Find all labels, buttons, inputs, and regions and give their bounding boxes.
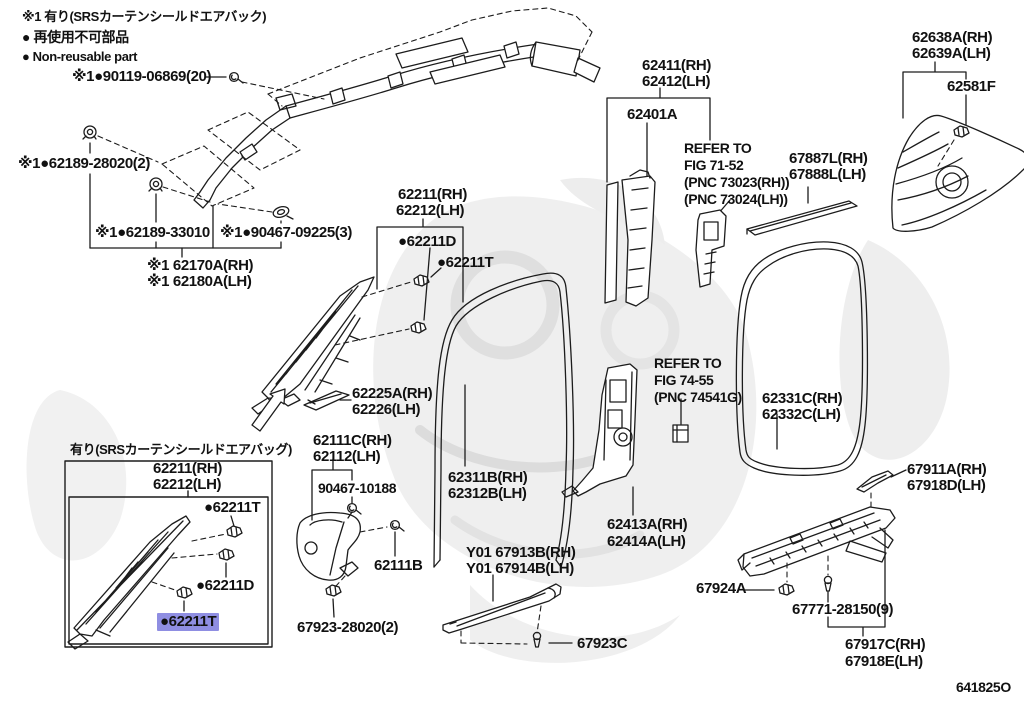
- refer-fig-74-55-line2: FIG 74-55: [654, 373, 713, 388]
- detail-box-label-62211[interactable]: 62211(RH): [153, 461, 222, 477]
- diagram-code: 641825O: [956, 680, 1011, 695]
- refer-fig-71-52-line1: REFER TO: [684, 141, 751, 156]
- part-label-62638a[interactable]: 62638A(RH): [912, 30, 992, 46]
- part-label-62401a[interactable]: 62401A: [627, 107, 677, 123]
- part-label-62332c[interactable]: 62332C(LH): [762, 407, 841, 423]
- part-label-62581f[interactable]: 62581F: [947, 79, 995, 95]
- part-label-62111c[interactable]: 62111C(RH): [313, 433, 392, 449]
- part-label-67887l[interactable]: 67887L(RH): [789, 151, 868, 167]
- detail-box-label-62212[interactable]: 62212(LH): [153, 477, 221, 493]
- part-label-62311b[interactable]: 62311B(RH): [448, 470, 527, 486]
- part-label-67913b[interactable]: Y01 67913B(RH): [466, 545, 575, 561]
- part-label-62211t[interactable]: ●62211T: [437, 255, 493, 271]
- legend-srs-note: ※1 有り(SRSカーテンシールドエアバック): [22, 10, 266, 24]
- labels-layer: ※1 有り(SRSカーテンシールドエアバック) ● 再使用不可部品 ● Non-…: [0, 0, 1024, 707]
- part-label-62211[interactable]: 62211(RH): [398, 187, 467, 203]
- part-label-90119-06869[interactable]: ※1●90119-06869(20): [72, 69, 211, 85]
- detail-box-label-62211d[interactable]: ●62211D: [196, 578, 254, 594]
- part-label-62211d[interactable]: ●62211D: [398, 234, 456, 250]
- part-label-90467-10188[interactable]: 90467-10188: [318, 481, 396, 496]
- part-label-67923-28020[interactable]: 67923-28020(2): [297, 620, 398, 636]
- part-label-67918d[interactable]: 67918D(LH): [907, 478, 986, 494]
- part-label-62414a[interactable]: 62414A(LH): [607, 534, 686, 550]
- part-label-62170a[interactable]: ※1 62170A(RH): [147, 258, 253, 274]
- detail-box-title: 有り(SRSカーテンシールドエアバッグ): [70, 443, 292, 457]
- refer-fig-74-55-line1: REFER TO: [654, 356, 721, 371]
- part-label-67914b[interactable]: Y01 67914B(LH): [466, 561, 574, 577]
- part-label-62189-28020[interactable]: ※1●62189-28020(2): [18, 156, 150, 172]
- refer-fig-74-55-line3: (PNC 74541G): [654, 390, 742, 405]
- part-label-62411[interactable]: 62411(RH): [642, 58, 711, 74]
- part-label-62112[interactable]: 62112(LH): [313, 449, 380, 465]
- part-label-62180a[interactable]: ※1 62180A(LH): [147, 274, 251, 290]
- part-label-62412[interactable]: 62412(LH): [642, 74, 710, 90]
- parts-diagram-canvas: ※1 有り(SRSカーテンシールドエアバック) ● 再使用不可部品 ● Non-…: [0, 0, 1024, 707]
- part-label-62639a[interactable]: 62639A(LH): [912, 46, 991, 62]
- part-label-62212[interactable]: 62212(LH): [396, 203, 464, 219]
- part-label-67771-28150[interactable]: 67771-28150(9): [792, 602, 893, 618]
- legend-nonreusable-en: ● Non-reusable part: [22, 50, 137, 64]
- detail-box-label-62211t-top[interactable]: ●62211T: [204, 500, 260, 516]
- part-label-62226[interactable]: 62226(LH): [352, 402, 420, 418]
- part-label-90467-09225[interactable]: ※1●90467-09225(3): [220, 225, 352, 241]
- part-label-67918e[interactable]: 67918E(LH): [845, 654, 923, 670]
- part-label-67917c[interactable]: 67917C(RH): [845, 637, 925, 653]
- part-label-62111b[interactable]: 62111B: [374, 558, 423, 574]
- part-label-67924a[interactable]: 67924A: [696, 581, 746, 597]
- refer-fig-71-52-line4: (PNC 73024(LH)): [684, 192, 788, 207]
- legend-nonreusable-ja: ● 再使用不可部品: [22, 30, 129, 45]
- highlighted-part-label-62211t[interactable]: ●62211T: [157, 613, 219, 631]
- part-label-67888l[interactable]: 67888L(LH): [789, 167, 866, 183]
- part-label-62225a[interactable]: 62225A(RH): [352, 386, 432, 402]
- part-label-67911a[interactable]: 67911A(RH): [907, 462, 986, 478]
- part-label-67923c[interactable]: 67923C: [577, 636, 627, 652]
- part-label-62413a[interactable]: 62413A(RH): [607, 517, 687, 533]
- part-label-62331c[interactable]: 62331C(RH): [762, 391, 842, 407]
- part-label-62189-33010[interactable]: ※1●62189-33010: [95, 225, 210, 241]
- refer-fig-71-52-line2: FIG 71-52: [684, 158, 743, 173]
- refer-fig-71-52-line3: (PNC 73023(RH)): [684, 175, 789, 190]
- part-label-62312b[interactable]: 62312B(LH): [448, 486, 527, 502]
